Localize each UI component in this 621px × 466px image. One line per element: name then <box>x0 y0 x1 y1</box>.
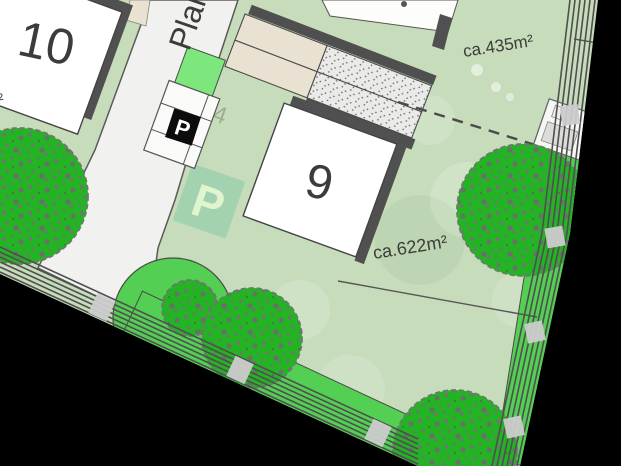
site-plan-canvas: 84 P P 10 9 ca.435m² ca.622m² m² Planstr… <box>0 0 621 466</box>
hatch-post <box>560 104 581 126</box>
map-symbol-dot <box>401 1 407 7</box>
building-10-label: 10 <box>14 10 80 76</box>
site-plan-screenshot: 84 P P 10 9 ca.435m² ca.622m² m² Planstr… <box>0 0 621 466</box>
hatch-post <box>544 226 565 249</box>
